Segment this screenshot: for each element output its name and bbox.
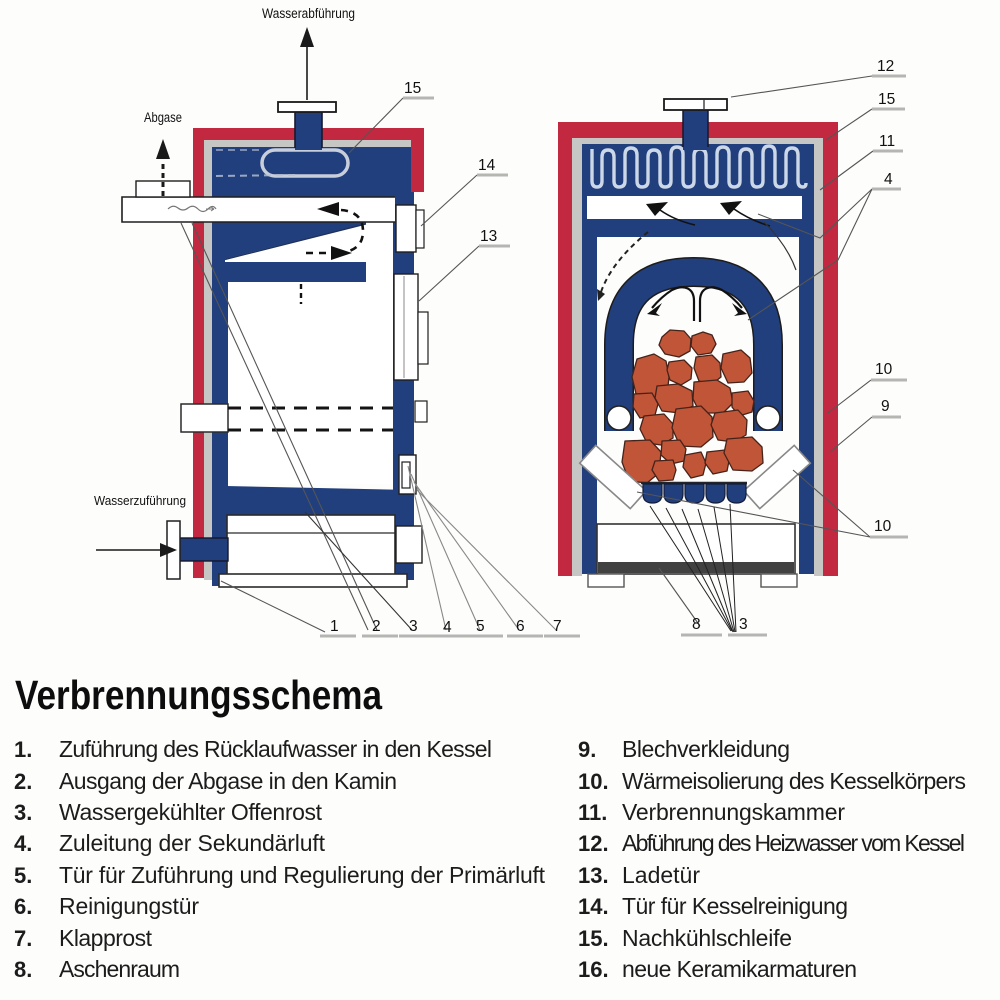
svg-text:Zuführung des Rücklaufwasser i: Zuführung des Rücklaufwasser in den Kess… [59, 736, 492, 762]
svg-text:Wasserzuführung: Wasserzuführung [94, 494, 186, 508]
svg-text:12.: 12. [578, 831, 609, 856]
svg-text:8.: 8. [14, 957, 32, 982]
svg-text:neue Keramikarmaturen: neue Keramikarmaturen [622, 956, 857, 982]
svg-text:Tür für Zuführung und Regulier: Tür für Zuführung und Regulierung der Pr… [59, 862, 546, 888]
svg-text:Wasserabführung: Wasserabführung [262, 6, 355, 21]
svg-text:7.: 7. [14, 926, 32, 951]
svg-text:Wassergekühlter Offenrost: Wassergekühlter Offenrost [59, 799, 323, 825]
svg-text:Verbrennungskammer: Verbrennungskammer [622, 799, 845, 825]
svg-text:1.: 1. [14, 737, 32, 762]
svg-text:14: 14 [478, 157, 496, 174]
svg-text:5.: 5. [14, 863, 32, 888]
svg-text:4: 4 [443, 619, 452, 636]
svg-text:1: 1 [330, 618, 339, 635]
svg-text:Ausgang der Abgase in den Kami: Ausgang der Abgase in den Kamin [59, 768, 397, 794]
svg-text:Klapprost: Klapprost [59, 925, 153, 951]
svg-text:6: 6 [516, 618, 525, 635]
svg-text:14.: 14. [578, 894, 609, 919]
svg-text:15: 15 [878, 91, 895, 108]
svg-text:9: 9 [881, 398, 890, 415]
svg-text:Nachkühlschleife: Nachkühlschleife [622, 925, 792, 951]
svg-text:5: 5 [476, 618, 485, 635]
svg-text:6.: 6. [14, 894, 32, 919]
svg-text:11.: 11. [578, 800, 607, 825]
svg-text:10: 10 [875, 361, 893, 378]
svg-text:3: 3 [409, 618, 418, 635]
svg-text:3.: 3. [14, 800, 32, 825]
svg-text:Tür für Kesselreinigung: Tür für Kesselreinigung [622, 893, 848, 919]
svg-text:3: 3 [739, 616, 748, 633]
svg-text:13: 13 [480, 228, 497, 245]
svg-text:4: 4 [884, 171, 893, 188]
svg-text:Blechverkleidung: Blechverkleidung [622, 736, 790, 762]
svg-text:Verbrennungsschema: Verbrennungsschema [15, 672, 383, 718]
svg-text:Reinigungstür: Reinigungstür [59, 893, 199, 919]
svg-text:8: 8 [692, 616, 701, 633]
svg-text:Wärmeisolierung des Kesselkörp: Wärmeisolierung des Kesselkörpers [622, 768, 966, 794]
svg-text:12: 12 [877, 58, 894, 75]
svg-text:4.: 4. [14, 831, 32, 856]
svg-text:Zuleitung der Sekundärluft: Zuleitung der Sekundärluft [59, 830, 326, 856]
svg-text:10.: 10. [578, 769, 609, 794]
svg-text:2: 2 [372, 618, 381, 635]
svg-text:Abführung des Heizwasser vom K: Abführung des Heizwasser vom Kessel [622, 830, 965, 856]
svg-text:16.: 16. [578, 957, 609, 982]
svg-text:10: 10 [874, 518, 892, 535]
svg-text:Aschenraum: Aschenraum [59, 956, 180, 982]
svg-text:Abgase: Abgase [144, 110, 182, 125]
svg-text:2.: 2. [14, 769, 32, 794]
svg-text:Ladetür: Ladetür [622, 862, 700, 888]
svg-text:7: 7 [553, 618, 562, 635]
svg-text:15.: 15. [578, 926, 609, 951]
svg-text:9.: 9. [578, 737, 596, 762]
svg-text:13.: 13. [578, 863, 609, 888]
svg-text:11: 11 [879, 133, 895, 150]
svg-text:15: 15 [404, 80, 421, 97]
